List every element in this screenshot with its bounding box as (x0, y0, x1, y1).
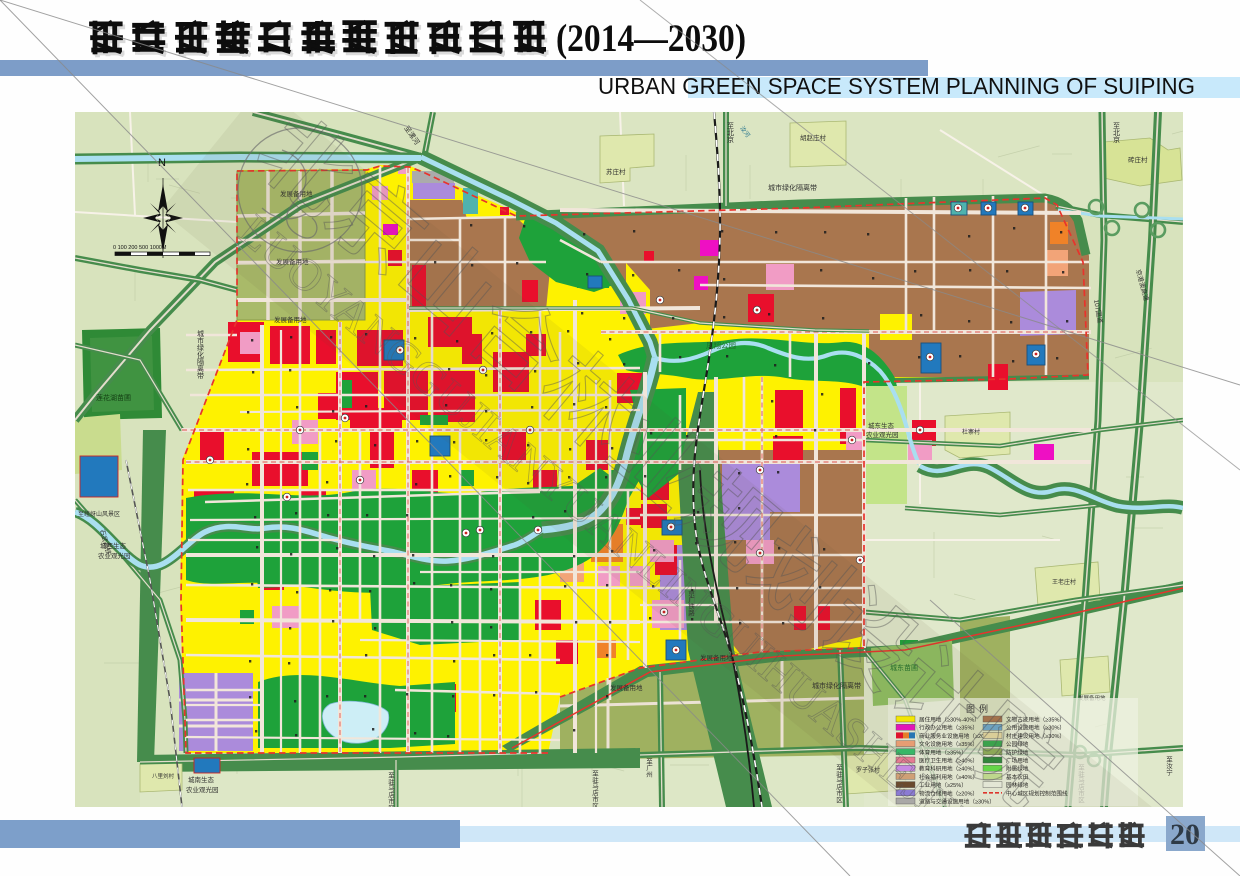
svg-text:城市绿化隔离带: 城市绿化隔离带 (768, 183, 817, 192)
svg-text:王老庄村: 王老庄村 (1052, 578, 1076, 586)
svg-text:杜寨村: 杜寨村 (962, 428, 980, 436)
svg-text:凤翔公园: 凤翔公园 (706, 340, 736, 350)
svg-text:农业观光园: 农业观光园 (98, 551, 131, 560)
svg-text:城南生态: 城南生态 (188, 775, 215, 784)
svg-text:八里刘村: 八里刘村 (152, 772, 175, 780)
svg-text:莲花湖苗圃: 莲花湖苗圃 (96, 393, 131, 402)
svg-text:苏庄村: 苏庄村 (606, 167, 626, 176)
svg-text:农业观光园: 农业观光园 (186, 785, 219, 794)
svg-text:URBAN GREEN SPACE SYSTEM PLANN: URBAN GREEN SPACE SYSTEM PLANNING OF SUI… (598, 73, 1195, 99)
svg-text:砖庄村: 砖庄村 (1128, 155, 1148, 164)
svg-text:农业观光园: 农业观光园 (866, 430, 899, 439)
svg-text:至北京: 至北京 (727, 122, 735, 144)
svg-text:(2014—2030): (2014—2030) (556, 17, 746, 60)
svg-text:发展备用地: 发展备用地 (610, 683, 643, 692)
svg-text:20: 20 (1170, 818, 1200, 851)
svg-text:城市绿化隔离带: 城市绿化隔离带 (197, 330, 205, 380)
svg-text:城东生态: 城东生态 (868, 421, 895, 430)
svg-text:至北京: 至北京 (1113, 122, 1121, 144)
svg-text:胡赵庄村: 胡赵庄村 (800, 133, 827, 142)
svg-text:0 100 200 500: 0 100 200 500 1000M (113, 245, 167, 251)
svg-text:至嵖岈山风景区: 至嵖岈山风景区 (78, 510, 120, 518)
